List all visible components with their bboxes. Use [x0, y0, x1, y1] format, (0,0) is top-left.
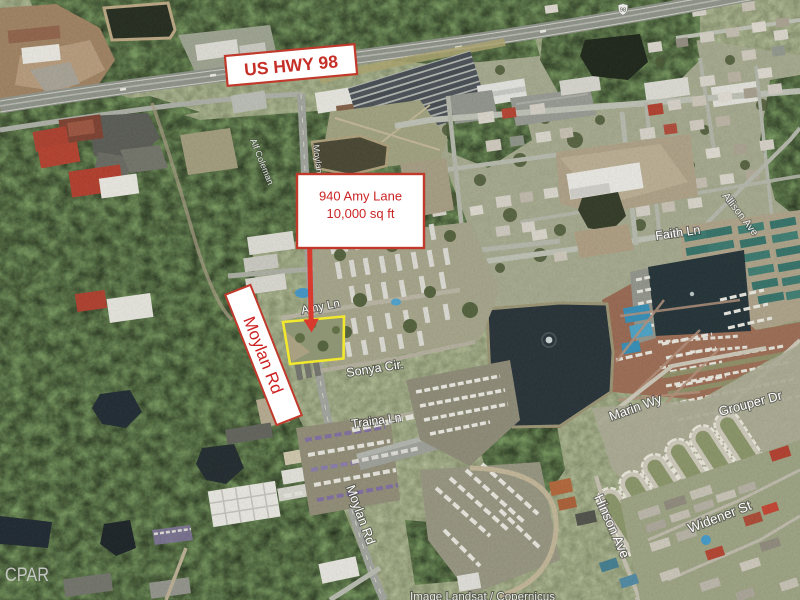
svg-text:940 Amy Lane: 940 Amy Lane: [319, 189, 402, 204]
svg-text:Image Landsat / Copernicus: Image Landsat / Copernicus: [410, 590, 555, 600]
svg-text:10,000 sq ft: 10,000 sq ft: [327, 206, 395, 221]
svg-text:CPAR: CPAR: [5, 564, 49, 586]
